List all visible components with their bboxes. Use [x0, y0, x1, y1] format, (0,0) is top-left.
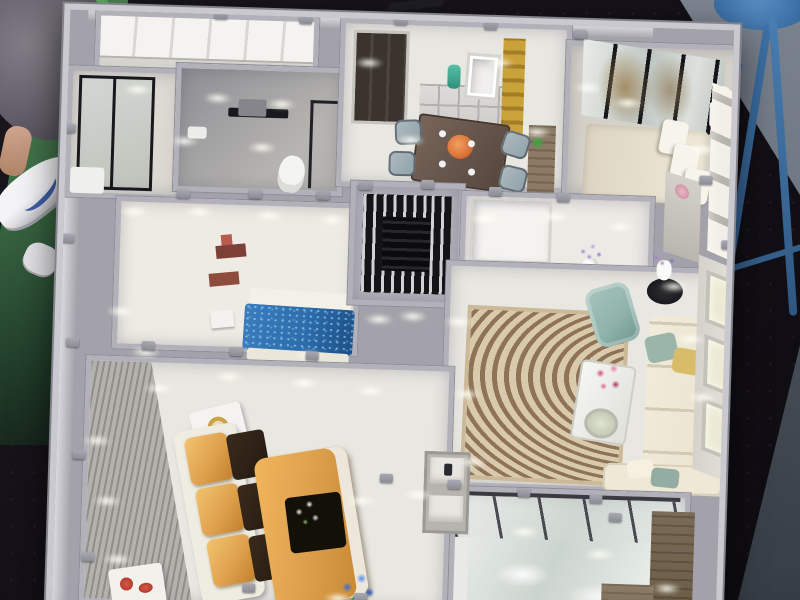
wall-clip [489, 187, 502, 196]
wall-clip [589, 494, 602, 503]
coffee-table [570, 359, 638, 447]
wall-clip [574, 29, 587, 38]
wall-clip [448, 480, 461, 489]
wall-clip [517, 488, 530, 497]
wall-clip [359, 181, 372, 190]
wall-clip [214, 10, 227, 19]
room-dining-entry [336, 18, 572, 193]
wall-clip [242, 583, 255, 592]
wall-clip [557, 193, 570, 202]
cabinet-shelf [429, 495, 464, 522]
purple-flowers [575, 240, 608, 267]
gold-cabinet [501, 38, 526, 135]
wall-clip [421, 180, 434, 189]
red-dish [119, 577, 134, 592]
white-shelf [210, 309, 234, 328]
toilet [275, 154, 307, 195]
wall-clip [609, 513, 622, 522]
wall-clip [394, 16, 407, 25]
wall-clip [72, 450, 85, 459]
glass-partition [455, 491, 680, 544]
wall-clip [317, 190, 330, 199]
dining-chair [388, 151, 416, 177]
room-balcony [447, 486, 690, 600]
towel [238, 99, 267, 117]
shower-screen [308, 100, 314, 188]
wall-clip [721, 240, 734, 249]
dresser [663, 171, 701, 262]
wall-clip [66, 338, 79, 347]
wall-clip [249, 189, 262, 198]
decor-item [444, 464, 452, 476]
white-side-table [108, 562, 167, 600]
wall-clip [354, 593, 367, 600]
railing-slats [361, 194, 384, 293]
photo-apartment-scale-model [0, 0, 800, 600]
red-dish [138, 582, 153, 594]
teal-vase [447, 64, 461, 88]
wall-shelf [209, 271, 240, 287]
wall-clip [230, 347, 243, 356]
stair-pit [361, 194, 452, 295]
wall-shelf [215, 243, 246, 259]
wall-clip [484, 21, 497, 30]
towel-shelf [70, 167, 105, 194]
entry-door [351, 29, 410, 125]
wall-clip [81, 552, 94, 561]
doorway [469, 196, 553, 265]
white-pillow [626, 458, 654, 479]
white-post [452, 537, 469, 600]
wall-clip [299, 15, 312, 24]
led-light-glow [364, 313, 394, 326]
glass-tray [582, 406, 620, 441]
wall-clip [380, 474, 393, 483]
room-bathroom [173, 63, 346, 196]
wood-cabinet [600, 584, 654, 600]
wall-clip [177, 189, 190, 198]
led-light-glow [398, 310, 428, 323]
teal-pillow [650, 467, 680, 489]
kitchen-cabinets [100, 16, 314, 65]
wall-clip [61, 233, 74, 242]
apartment-scale-model [44, 3, 740, 600]
pink-flower-decor [675, 182, 689, 200]
wall-clip [63, 123, 76, 132]
led-light-glow [106, 305, 136, 318]
stair-treads [381, 218, 431, 269]
room-lounge [79, 355, 455, 600]
wall-clip [142, 341, 155, 350]
wall-clip [306, 351, 319, 360]
wall-clip [699, 175, 712, 184]
